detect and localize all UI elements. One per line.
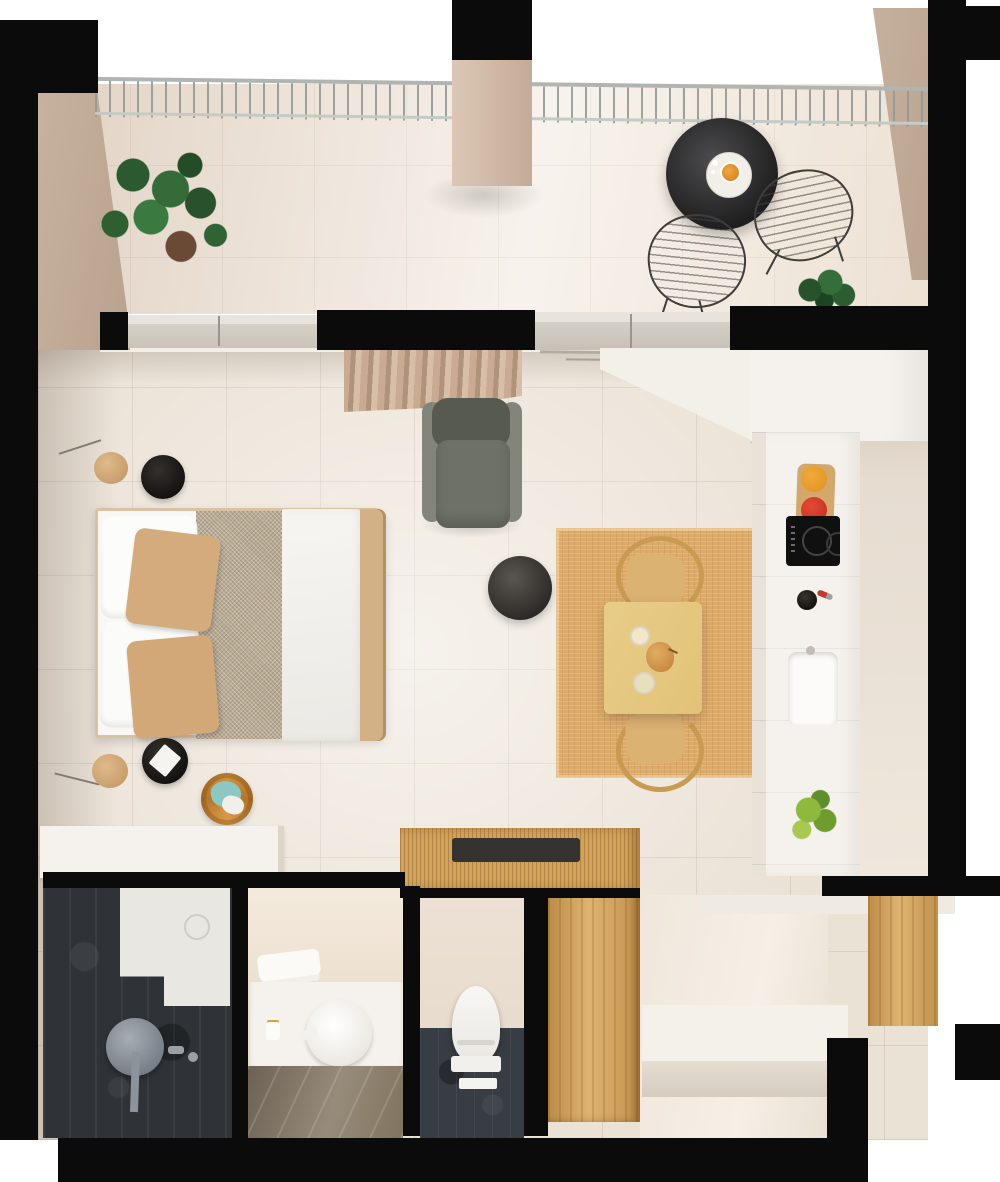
herb-plant <box>782 782 848 852</box>
low-dresser <box>40 826 284 878</box>
bottle <box>797 590 817 610</box>
balcony-door-glass <box>535 312 732 350</box>
wall-wc-left-frame <box>403 886 420 1136</box>
wood-chair-bottom-seat <box>624 710 685 766</box>
drinking-glass-2 <box>633 672 655 694</box>
fruit-orange <box>801 466 827 492</box>
wall-shower-vanity-divider <box>232 886 248 1140</box>
armchair-seat <box>436 440 510 528</box>
mixer-knob <box>188 1052 198 1062</box>
floor-plan-render <box>0 0 1000 1182</box>
white-duvet <box>282 509 364 741</box>
toilet-mat <box>459 1078 497 1089</box>
entry-bench-top <box>642 1005 848 1063</box>
drinking-glass-1 <box>630 626 650 646</box>
bed-foot-frame <box>360 509 386 741</box>
candle <box>266 1022 280 1040</box>
toilet-tank <box>451 1056 501 1072</box>
round-pouf <box>488 556 552 620</box>
wood-back-panel <box>868 892 938 1026</box>
kitchen-sink <box>788 652 838 726</box>
wall-cube-under-band <box>400 888 640 898</box>
wall-divider-right <box>730 306 962 350</box>
bedroom-window <box>128 314 317 348</box>
nightstand-top <box>141 455 185 499</box>
toilet-seat-line <box>457 1040 495 1045</box>
wood-chair-top-seat <box>625 553 686 608</box>
floor-lamp-bottom <box>92 754 128 788</box>
floor-lamp-top <box>94 452 128 484</box>
balcony-door-mullion <box>630 314 632 348</box>
wall-right <box>928 0 966 878</box>
cooktop-ring-2 <box>826 532 840 556</box>
potted-plant <box>88 140 238 280</box>
sugar-cubes <box>712 160 718 166</box>
bedroom-window-mullion <box>218 316 220 346</box>
wall-wc-right-post <box>524 888 548 1136</box>
sink-faucet <box>806 646 815 655</box>
chimney-cap <box>452 0 532 60</box>
wall-bathroom-top-band <box>43 872 405 888</box>
pear <box>646 642 674 672</box>
marble-floor <box>248 1066 403 1140</box>
wall-right-step <box>955 1024 1000 1080</box>
wall-left <box>0 20 38 1140</box>
tan-pillow-bottom <box>126 634 220 739</box>
wall-divider-mid <box>317 310 535 350</box>
toilet-bowl <box>452 986 500 1062</box>
induction-cooktop <box>786 516 840 566</box>
mixer-fixtures <box>168 1046 184 1054</box>
entry-bench-face <box>642 1061 848 1097</box>
chimney-column <box>452 58 532 186</box>
wall-kitchen-end-stub <box>822 876 1000 896</box>
wardrobe-panel <box>548 888 640 1122</box>
counter-left-face <box>752 432 766 876</box>
coffee-cup <box>722 164 739 181</box>
serving-tray <box>452 838 580 862</box>
wall-top-right-block <box>962 6 1000 60</box>
tan-pillow-top <box>124 527 221 633</box>
wall-divider-left-stub <box>100 312 128 350</box>
wall-bottom <box>58 1138 868 1182</box>
floor-drain <box>184 914 210 940</box>
cooktop-controls <box>791 526 795 554</box>
upper-cabinets <box>750 348 930 444</box>
